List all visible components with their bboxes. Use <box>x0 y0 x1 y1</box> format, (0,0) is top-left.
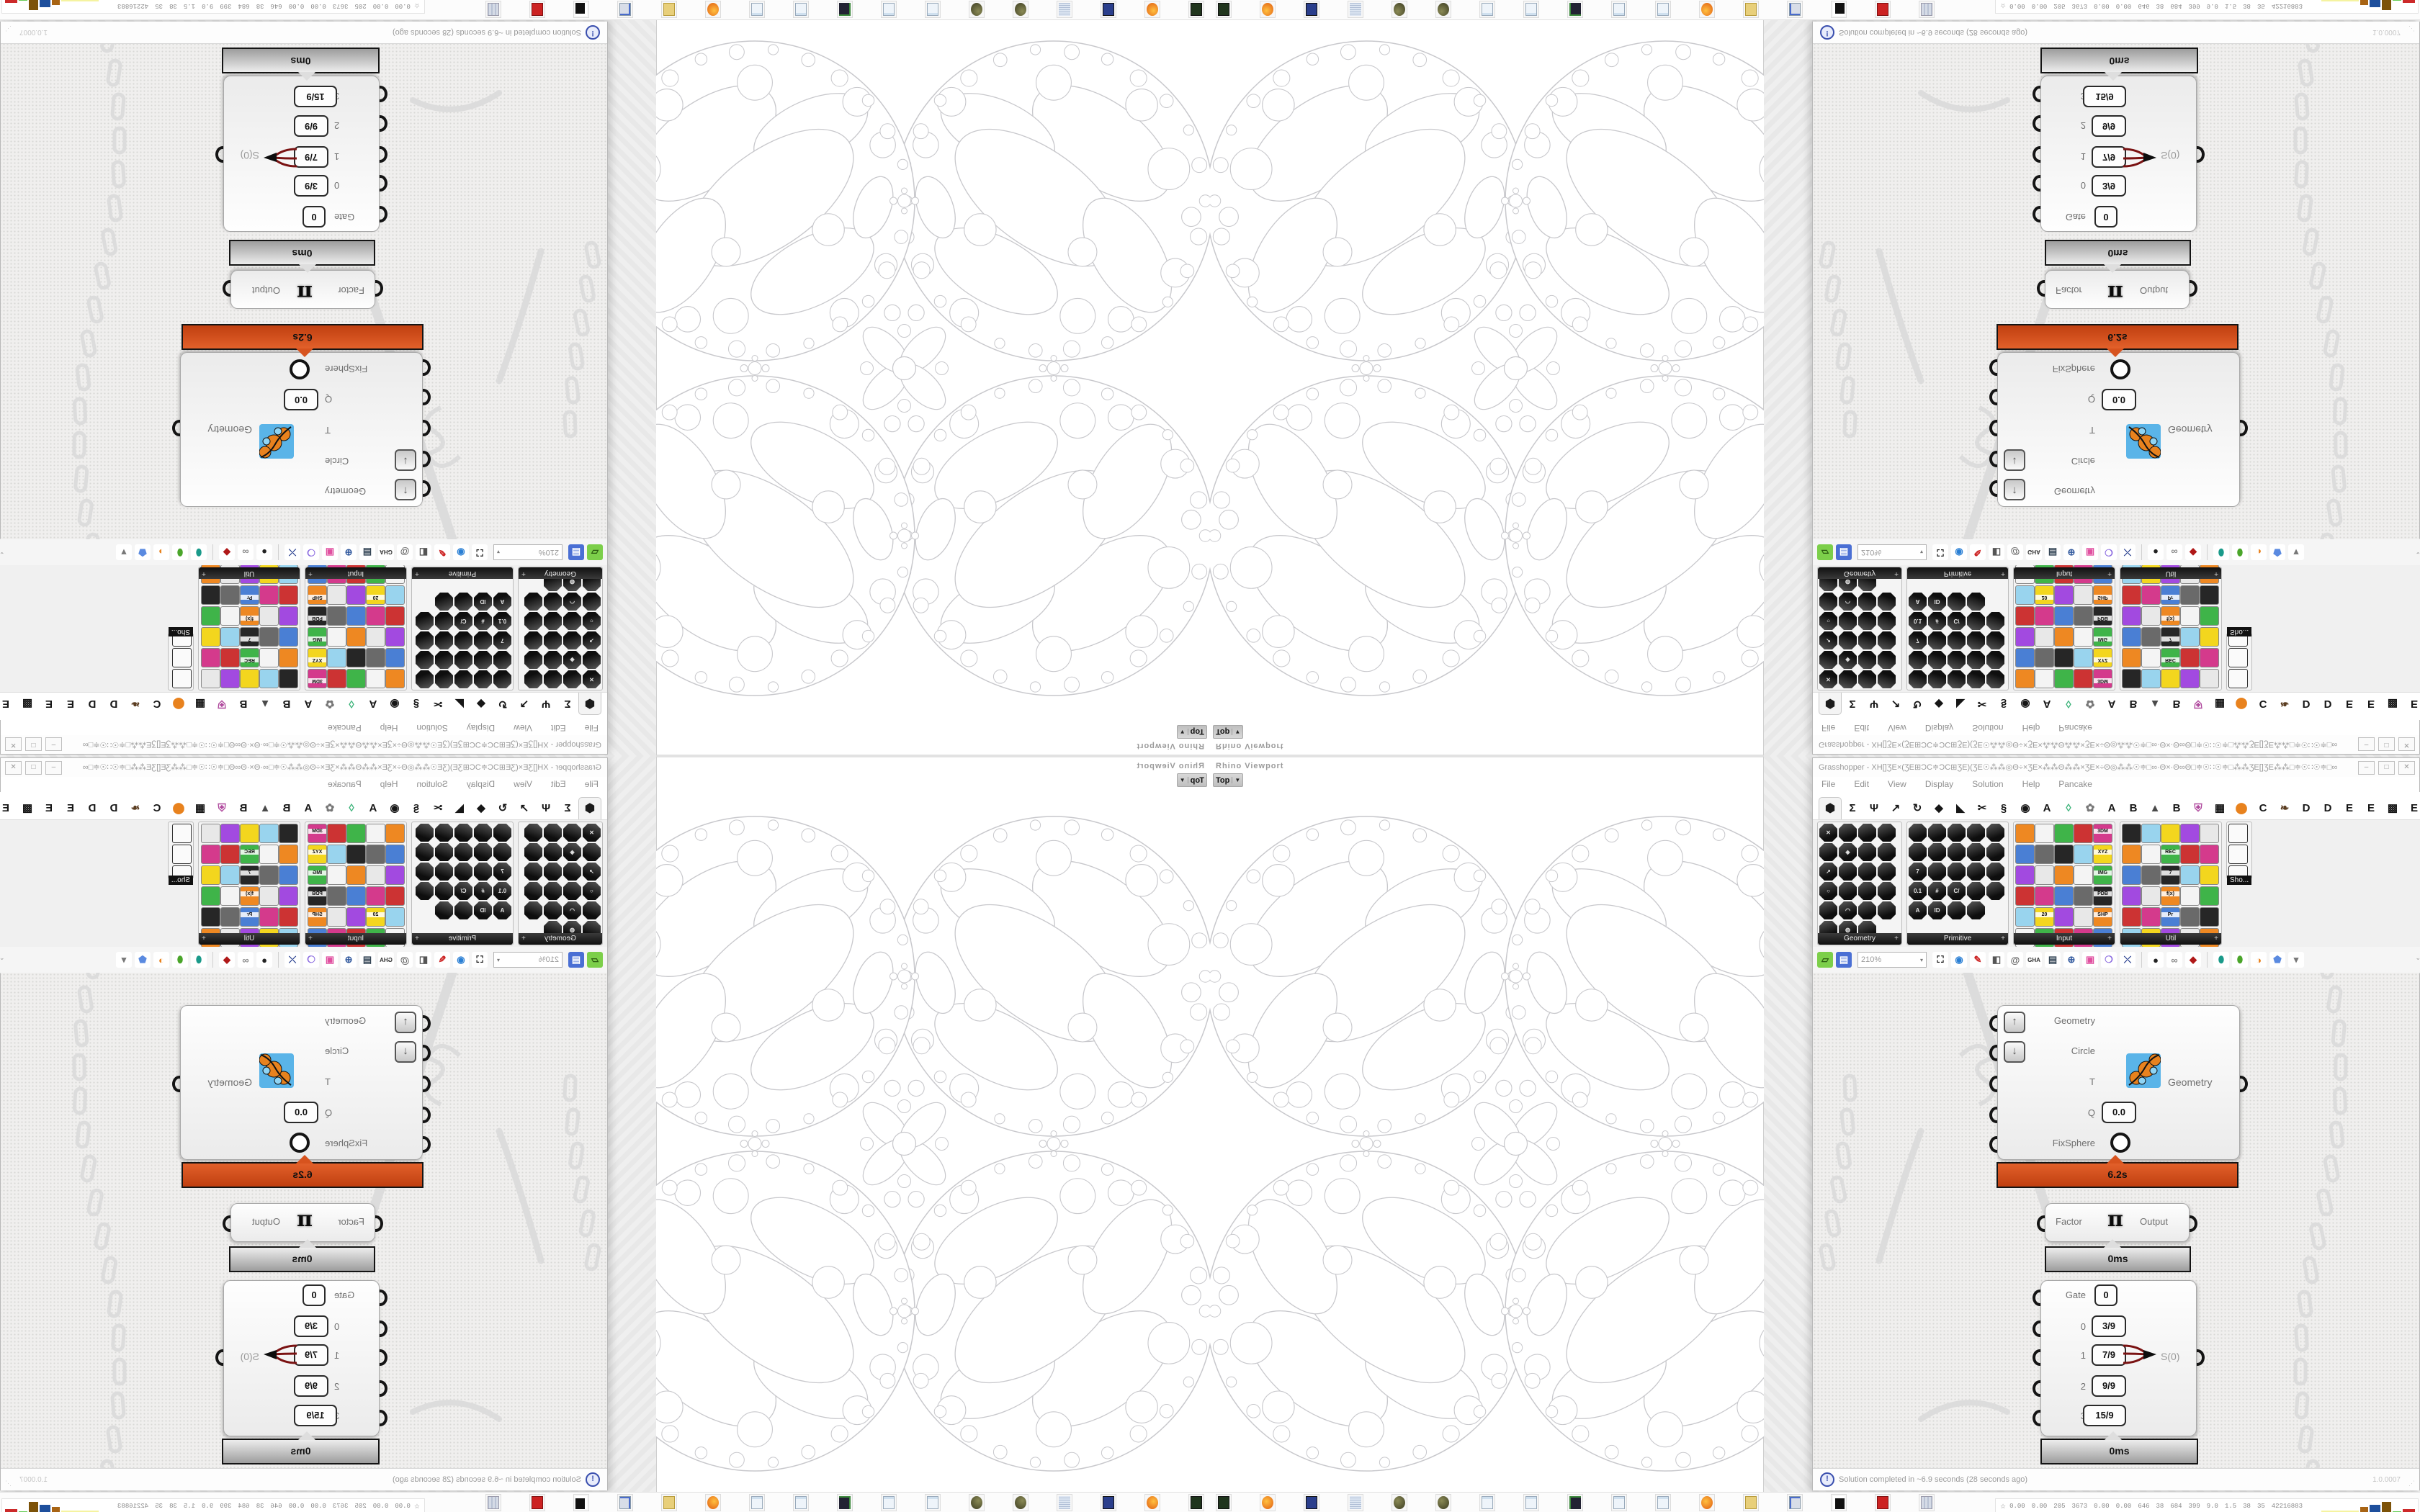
monitor-taskbar-icon[interactable] <box>1567 1 1583 18</box>
bake-green-button[interactable]: ⬮ <box>172 544 188 560</box>
ball-taskbar-icon[interactable] <box>969 1 985 18</box>
ball-taskbar-icon[interactable] <box>1391 1494 1407 1511</box>
category-tab[interactable]: B <box>276 693 297 714</box>
component-icon[interactable] <box>416 843 434 861</box>
floppy-taskbar-icon[interactable] <box>1101 1 1116 18</box>
component-icon[interactable] <box>2074 648 2093 667</box>
category-tab[interactable]: ✿ <box>2079 798 2101 819</box>
palette-group-label[interactable]: Input+ <box>305 567 406 579</box>
palette-group-label[interactable]: Geometry+ <box>1818 567 1901 579</box>
minimize-button[interactable]: – <box>45 737 62 751</box>
component-icon[interactable] <box>544 901 562 919</box>
monitor-taskbar-icon[interactable] <box>837 1 853 18</box>
magnifier-button[interactable]: ⊕ <box>2063 544 2079 560</box>
category-tab[interactable]: ◊ <box>341 798 362 819</box>
component-icon[interactable] <box>346 824 366 843</box>
category-tab[interactable]: ▲ <box>254 693 276 714</box>
component-icon[interactable]: XYZ <box>308 845 327 864</box>
input-socket[interactable] <box>1989 389 2004 405</box>
component-icon[interactable] <box>1986 843 2004 861</box>
component-icon[interactable] <box>474 651 492 669</box>
bake-green-button[interactable]: ⬮ <box>2232 544 2248 560</box>
component-icon[interactable] <box>366 606 385 626</box>
component-icon[interactable] <box>474 631 492 649</box>
at-button[interactable]: @ <box>397 952 413 968</box>
rhino-viewport-pane[interactable]: Rhino Viewport Top ▼ <box>1210 756 1764 1493</box>
component-icon[interactable] <box>2054 648 2074 667</box>
category-tab[interactable]: A <box>2101 798 2123 819</box>
component-icon[interactable]: 20 <box>2035 907 2054 927</box>
zoom-level-input[interactable]: 210%▾ <box>493 544 563 560</box>
component-icon[interactable]: 3DM <box>2093 824 2112 843</box>
component-icon[interactable] <box>1909 843 1927 861</box>
output-socket[interactable] <box>172 420 187 436</box>
component-icon[interactable]: ◈ <box>563 843 581 861</box>
category-tab[interactable]: ✿ <box>319 693 341 714</box>
tab-params-selected[interactable]: ⬢ <box>1819 693 1842 715</box>
component-icon[interactable]: ◠ <box>1839 593 1857 611</box>
rhino-viewport-pane[interactable]: Rhino Viewport Top ▼ <box>656 19 1210 756</box>
category-tab[interactable]: ▲ <box>2144 693 2166 714</box>
category-tab[interactable]: ◣ <box>449 693 470 714</box>
component-icon[interactable] <box>2054 824 2074 843</box>
gate-value-box[interactable]: 0 <box>2094 1284 2117 1306</box>
graft-up-button[interactable]: ↑ <box>395 1012 416 1033</box>
component-icon[interactable]: ID <box>1928 901 1946 919</box>
component-icon[interactable] <box>2122 606 2141 626</box>
zoom-extents-button[interactable]: ⛶ <box>1932 952 1948 968</box>
component-icon[interactable] <box>544 843 562 861</box>
component-icon[interactable] <box>2200 648 2219 667</box>
grasshopper-canvas[interactable]: ↑ ↓ Geometry Circle T Q FixSphere 0.0 <box>1 973 607 1468</box>
component-icon[interactable] <box>544 593 562 611</box>
component-icon[interactable] <box>259 824 279 843</box>
component-icon[interactable] <box>2054 669 2074 688</box>
component-icon[interactable] <box>2122 627 2141 647</box>
ball-taskbar-icon[interactable] <box>1435 1 1451 18</box>
component-icon[interactable] <box>279 907 298 927</box>
component-icon[interactable]: ◠ <box>1839 901 1857 919</box>
balloon-button[interactable]: ❍ <box>303 952 319 968</box>
firefox-taskbar-icon[interactable] <box>705 1494 721 1511</box>
component-icon[interactable] <box>583 651 601 669</box>
wires-button[interactable]: ⤬ <box>2120 544 2136 560</box>
menu-file[interactable]: File <box>585 723 599 733</box>
bake-teal-button[interactable]: ⬮ <box>2213 952 2229 968</box>
tab-params-selected[interactable]: ⬢ <box>578 797 601 819</box>
component-icon[interactable] <box>524 651 542 669</box>
preview-eye-button[interactable]: ◉ <box>1951 544 1967 560</box>
tab-params-selected[interactable]: ⬢ <box>578 693 601 715</box>
category-tab[interactable]: Σ <box>1842 798 1863 819</box>
component-icon[interactable] <box>385 606 405 626</box>
component-icon[interactable] <box>366 886 385 906</box>
component-icon[interactable] <box>2122 886 2141 906</box>
component-icon[interactable] <box>1967 863 1985 881</box>
component-icon[interactable] <box>259 845 279 864</box>
at-button[interactable]: @ <box>2007 544 2023 560</box>
component-icon[interactable] <box>1839 882 1857 900</box>
category-tab[interactable]: ↻ <box>1906 693 1928 714</box>
component-icon[interactable] <box>2015 907 2035 927</box>
category-tab[interactable]: Ψ <box>1863 798 1885 819</box>
category-tab[interactable]: ✂ <box>1971 798 1993 819</box>
component-icon[interactable] <box>2180 627 2200 647</box>
input-socket[interactable] <box>2037 1215 2051 1232</box>
component-icon[interactable] <box>2015 606 2035 626</box>
component-icon[interactable] <box>416 863 434 881</box>
component-icon[interactable] <box>2074 865 2093 885</box>
input-socket[interactable] <box>1989 1045 2004 1061</box>
input-socket[interactable] <box>416 1107 431 1123</box>
firefox-taskbar-icon[interactable] <box>1144 1 1160 18</box>
category-tab[interactable]: D <box>103 798 125 819</box>
component-icon[interactable]: 3DM <box>308 669 327 688</box>
output-socket[interactable] <box>2183 1215 2197 1232</box>
graft-up-button[interactable]: ↑ <box>2004 479 2025 500</box>
menu-view[interactable]: View <box>1888 779 1906 789</box>
category-tab[interactable]: ◆ <box>470 798 492 819</box>
component-icon[interactable] <box>1948 824 1966 842</box>
menu-display[interactable]: Display <box>467 779 495 789</box>
component-icon[interactable] <box>2228 669 2248 688</box>
component-icon[interactable] <box>2228 824 2248 843</box>
flatten-down-button[interactable]: ↓ <box>395 1041 416 1063</box>
component-icon[interactable] <box>346 585 366 605</box>
component-icon[interactable] <box>1909 670 1927 688</box>
component-icon[interactable] <box>1819 901 1837 919</box>
palette-group-label[interactable]: Util+ <box>199 567 300 579</box>
component-icon[interactable]: A <box>493 593 511 611</box>
exposure-button[interactable]: ◧ <box>416 544 431 560</box>
calc-taskbar-icon[interactable] <box>1919 1 1935 18</box>
maximize-button[interactable]: □ <box>2378 761 2395 775</box>
category-tab[interactable]: ⬤ <box>168 798 189 819</box>
component-icon[interactable] <box>220 648 240 667</box>
fixsphere-toggle[interactable] <box>290 359 310 379</box>
category-tab[interactable]: E <box>2339 798 2360 819</box>
component-icon[interactable] <box>2054 845 2074 864</box>
component-icon[interactable]: PDB <box>2093 886 2112 906</box>
q-value-box[interactable]: 0.0 <box>284 1102 318 1123</box>
output-socket[interactable] <box>172 1076 187 1092</box>
component-icon[interactable] <box>2054 627 2074 647</box>
component-icon[interactable] <box>493 651 511 669</box>
component-icon[interactable] <box>454 651 472 669</box>
component-icon[interactable]: f(x) <box>240 606 259 626</box>
factor-pi-component[interactable]: Factor π Output <box>2045 1203 2190 1242</box>
component-icon[interactable]: 20 <box>366 585 385 605</box>
component-icon[interactable]: 0.1 <box>493 612 511 630</box>
category-tab[interactable]: Σ <box>557 798 578 819</box>
note-taskbar-icon[interactable] <box>1611 1 1627 18</box>
component-icon[interactable] <box>2141 606 2161 626</box>
component-icon[interactable] <box>259 606 279 626</box>
folder-taskbar-icon[interactable] <box>1743 1494 1759 1511</box>
component-icon[interactable] <box>2035 824 2054 843</box>
component-icon[interactable]: 20 <box>366 907 385 927</box>
component-icon[interactable] <box>2054 606 2074 626</box>
category-tab[interactable]: ⛨ <box>2187 693 2209 714</box>
component-icon[interactable] <box>2200 845 2219 864</box>
category-tab[interactable]: ↗ <box>514 693 535 714</box>
component-icon[interactable] <box>2015 886 2035 906</box>
component-icon[interactable] <box>1858 863 1876 881</box>
component-icon[interactable] <box>454 843 472 861</box>
at-button[interactable]: @ <box>397 544 413 560</box>
component-icon[interactable] <box>220 886 240 906</box>
find-document-button[interactable]: ▤ <box>359 544 375 560</box>
scroll-taskbar-icon[interactable] <box>1057 1494 1072 1511</box>
category-tab[interactable]: ▩ <box>2382 693 2403 714</box>
find-document-button[interactable]: ▤ <box>2045 544 2061 560</box>
package-button[interactable]: ▣ <box>322 952 338 968</box>
dropdown[interactable]: ▾ <box>116 952 132 968</box>
component-icon[interactable] <box>1909 651 1927 669</box>
scroll-taskbar-icon[interactable] <box>1057 1 1072 18</box>
component-icon[interactable] <box>240 824 259 843</box>
sketch-pen-button[interactable]: ✎ <box>434 952 450 968</box>
output-socket[interactable] <box>2233 1076 2248 1092</box>
input-socket[interactable] <box>1989 1136 2004 1153</box>
menu-pancake[interactable]: Pancake <box>328 723 362 733</box>
category-tab[interactable]: E <box>2403 693 2420 714</box>
component-icon[interactable] <box>201 824 220 843</box>
component-icon[interactable] <box>2141 907 2161 927</box>
component-icon[interactable] <box>1967 824 1985 842</box>
component-icon[interactable] <box>259 648 279 667</box>
component-icon[interactable] <box>544 882 562 900</box>
category-tab[interactable]: ↻ <box>1906 798 1928 819</box>
component-icon[interactable]: C/ <box>454 882 472 900</box>
component-icon[interactable] <box>279 865 298 885</box>
resize-grip[interactable]: ⋰ <box>5 24 12 32</box>
component-icon[interactable] <box>1986 631 2004 649</box>
component-icon[interactable] <box>2141 627 2161 647</box>
category-tab[interactable]: ◆ <box>1928 798 1950 819</box>
component-icon[interactable] <box>366 627 385 647</box>
component-icon[interactable] <box>2180 907 2200 927</box>
cluster-ball-button[interactable]: ● <box>256 952 272 968</box>
exposure-button[interactable]: ◧ <box>416 952 431 968</box>
palette-group-label[interactable]: Primitive+ <box>412 567 513 579</box>
category-tab[interactable]: B <box>2123 798 2144 819</box>
component-icon[interactable] <box>2035 627 2054 647</box>
component-icon[interactable] <box>1986 882 2004 900</box>
menu-help[interactable]: Help <box>380 779 398 789</box>
component-icon[interactable]: IMG <box>308 865 327 885</box>
component-icon[interactable] <box>1967 631 1985 649</box>
folder-taskbar-icon[interactable] <box>661 1 677 18</box>
component-icon[interactable] <box>435 901 453 919</box>
component-icon[interactable] <box>1878 612 1896 630</box>
category-tab[interactable]: ❧ <box>2274 693 2295 714</box>
component-icon[interactable] <box>201 865 220 885</box>
component-icon[interactable] <box>2200 627 2219 647</box>
note-taskbar-icon[interactable] <box>749 1 765 18</box>
input-socket[interactable] <box>416 420 431 436</box>
input-socket[interactable] <box>1989 420 2004 436</box>
preview-blue-button[interactable]: ⬟ <box>2269 952 2285 968</box>
factor-pi-component[interactable]: Factor π Output <box>2045 270 2190 309</box>
wires-button[interactable]: ⤬ <box>284 544 300 560</box>
gha-button[interactable]: GHA <box>2026 544 2042 560</box>
component-icon[interactable] <box>220 907 240 927</box>
zigzag-taskbar-icon[interactable] <box>573 1494 589 1511</box>
component-icon[interactable] <box>2035 886 2054 906</box>
category-tab[interactable]: ◆ <box>1928 693 1950 714</box>
category-tab[interactable]: ▦ <box>2209 693 2231 714</box>
component-icon[interactable]: 7 <box>2161 865 2180 885</box>
minimize-button[interactable]: – <box>45 761 62 775</box>
gate-value-box[interactable]: 0 <box>2094 206 2117 228</box>
cluster-rings-button[interactable]: ∞ <box>238 952 254 968</box>
note-taskbar-icon[interactable] <box>1523 1 1539 18</box>
input-socket[interactable] <box>416 359 431 376</box>
component-icon[interactable] <box>220 606 240 626</box>
input-socket[interactable] <box>1989 1076 2004 1092</box>
component-icon[interactable]: 20 <box>2035 585 2054 605</box>
component-icon[interactable] <box>2035 669 2054 688</box>
component-icon[interactable]: ◠ <box>563 901 581 919</box>
input-socket[interactable] <box>416 1136 431 1153</box>
input-socket[interactable] <box>1989 1015 2004 1032</box>
menu-solution[interactable]: Solution <box>1972 723 2003 733</box>
component-icon[interactable] <box>1948 631 1966 649</box>
component-icon[interactable] <box>2180 606 2200 626</box>
category-tab[interactable]: ⛨ <box>211 798 233 819</box>
component-icon[interactable] <box>493 670 511 688</box>
component-icon[interactable] <box>2074 669 2093 688</box>
input-socket[interactable] <box>416 480 431 497</box>
component-icon[interactable]: Pr <box>240 585 259 605</box>
component-icon[interactable] <box>385 648 405 667</box>
palette-group-label[interactable]: Primitive+ <box>1907 567 2008 579</box>
component-icon[interactable] <box>474 824 492 842</box>
dropdown[interactable]: ▾ <box>2288 544 2304 560</box>
component-icon[interactable] <box>385 669 405 688</box>
component-icon[interactable] <box>327 886 346 906</box>
tab-params-selected[interactable]: ⬢ <box>1819 797 1842 819</box>
menu-help[interactable]: Help <box>2022 779 2040 789</box>
component-icon[interactable] <box>2122 845 2141 864</box>
component-icon[interactable] <box>1819 651 1837 669</box>
component-icon[interactable] <box>2035 648 2054 667</box>
category-tab[interactable]: ↻ <box>492 798 514 819</box>
ball-taskbar-icon[interactable] <box>1013 1494 1028 1511</box>
component-icon[interactable]: XYZ <box>2093 648 2112 667</box>
firefox-taskbar-icon[interactable] <box>1699 1 1715 18</box>
floppy-taskbar-icon[interactable] <box>1304 1 1319 18</box>
category-tab[interactable]: ↗ <box>514 798 535 819</box>
component-icon[interactable] <box>279 606 298 626</box>
category-tab[interactable]: E <box>38 693 60 714</box>
component-icon[interactable] <box>1878 824 1896 842</box>
redcard-taskbar-icon[interactable] <box>529 1 545 18</box>
component-icon[interactable] <box>2141 865 2161 885</box>
component-icon[interactable] <box>454 901 472 919</box>
component-icon[interactable] <box>201 627 220 647</box>
component-icon[interactable] <box>1878 863 1896 881</box>
resize-grip[interactable]: ⋰ <box>2408 1480 2415 1488</box>
cluster-ball-button[interactable]: ● <box>2148 544 2164 560</box>
component-icon[interactable] <box>172 845 192 864</box>
component-icon[interactable]: 3DM <box>2093 669 2112 688</box>
component-icon[interactable] <box>1986 651 2004 669</box>
component-icon[interactable] <box>2074 845 2093 864</box>
component-icon[interactable] <box>435 612 453 630</box>
component-icon[interactable]: 7 <box>1909 631 1927 649</box>
component-icon[interactable]: IMG <box>2093 627 2112 647</box>
rhino-viewport-pane[interactable]: Rhino Viewport Top ▼ <box>1210 19 1764 756</box>
fixsphere-toggle[interactable] <box>290 1133 310 1153</box>
category-tab[interactable]: ◊ <box>341 693 362 714</box>
gha-button[interactable]: GHA <box>2026 952 2042 968</box>
component-icon[interactable] <box>1948 843 1966 861</box>
category-tab[interactable]: ⛨ <box>211 693 233 714</box>
category-tab[interactable]: B <box>2123 693 2144 714</box>
palette-group-label[interactable]: Input+ <box>305 933 406 945</box>
output-socket[interactable] <box>2183 280 2197 297</box>
grasshopper-canvas[interactable]: ↑ ↓ Geometry Circle T Q FixSphere 0.0 <box>1813 973 2419 1468</box>
category-tab[interactable]: § <box>1993 798 2015 819</box>
component-icon[interactable] <box>172 648 192 667</box>
category-tab[interactable]: Σ <box>1842 693 1863 714</box>
component-icon[interactable] <box>279 669 298 688</box>
category-tab[interactable]: E <box>2360 798 2382 819</box>
component-icon[interactable] <box>2074 606 2093 626</box>
category-tab[interactable]: § <box>405 798 427 819</box>
calc-taskbar-icon[interactable] <box>1919 1494 1935 1511</box>
q-value-box[interactable]: 0.0 <box>2102 389 2136 410</box>
category-tab[interactable]: ▩ <box>17 693 38 714</box>
category-tab[interactable]: B <box>2166 693 2187 714</box>
component-icon[interactable] <box>2054 865 2074 885</box>
category-tab[interactable]: B <box>233 798 254 819</box>
input-socket[interactable] <box>1989 480 2004 497</box>
component-icon[interactable]: ID <box>474 901 492 919</box>
component-icon[interactable] <box>2122 865 2141 885</box>
component-icon[interactable] <box>416 651 434 669</box>
maximize-button[interactable]: □ <box>2378 737 2395 751</box>
component-icon[interactable]: 0.1 <box>1909 612 1927 630</box>
component-icon[interactable] <box>563 882 581 900</box>
pc-taskbar-icon[interactable] <box>1787 1 1803 18</box>
menu-solution[interactable]: Solution <box>1972 779 2003 789</box>
component-icon[interactable] <box>327 585 346 605</box>
component-icon[interactable] <box>1858 670 1876 688</box>
folder-taskbar-icon[interactable] <box>661 1494 677 1511</box>
component-icon[interactable] <box>1928 824 1946 842</box>
preview-half-button[interactable]: ◑ <box>153 544 169 560</box>
component-icon[interactable]: 0.1 <box>1909 882 1927 900</box>
output-socket[interactable] <box>2233 420 2248 436</box>
category-tab[interactable]: ✿ <box>319 798 341 819</box>
gate-row-value[interactable]: 3/9 <box>2092 1315 2126 1337</box>
factor-pi-component[interactable]: Factor π Output <box>230 270 375 309</box>
calc-taskbar-icon[interactable] <box>485 1494 501 1511</box>
component-icon[interactable] <box>279 585 298 605</box>
component-icon[interactable] <box>259 585 279 605</box>
component-icon[interactable] <box>2054 907 2074 927</box>
category-tab[interactable]: ◉ <box>2015 798 2036 819</box>
component-icon[interactable] <box>454 593 472 611</box>
component-icon[interactable] <box>474 670 492 688</box>
component-icon[interactable] <box>2228 845 2248 864</box>
close-button[interactable]: ✕ <box>5 761 22 775</box>
gate-component[interactable]: Gate 0 0 3/9 1 7/9 2 9/9 3 15/9 S(0) <box>223 1280 380 1436</box>
device-taskbar-icon[interactable] <box>1188 1494 1204 1511</box>
